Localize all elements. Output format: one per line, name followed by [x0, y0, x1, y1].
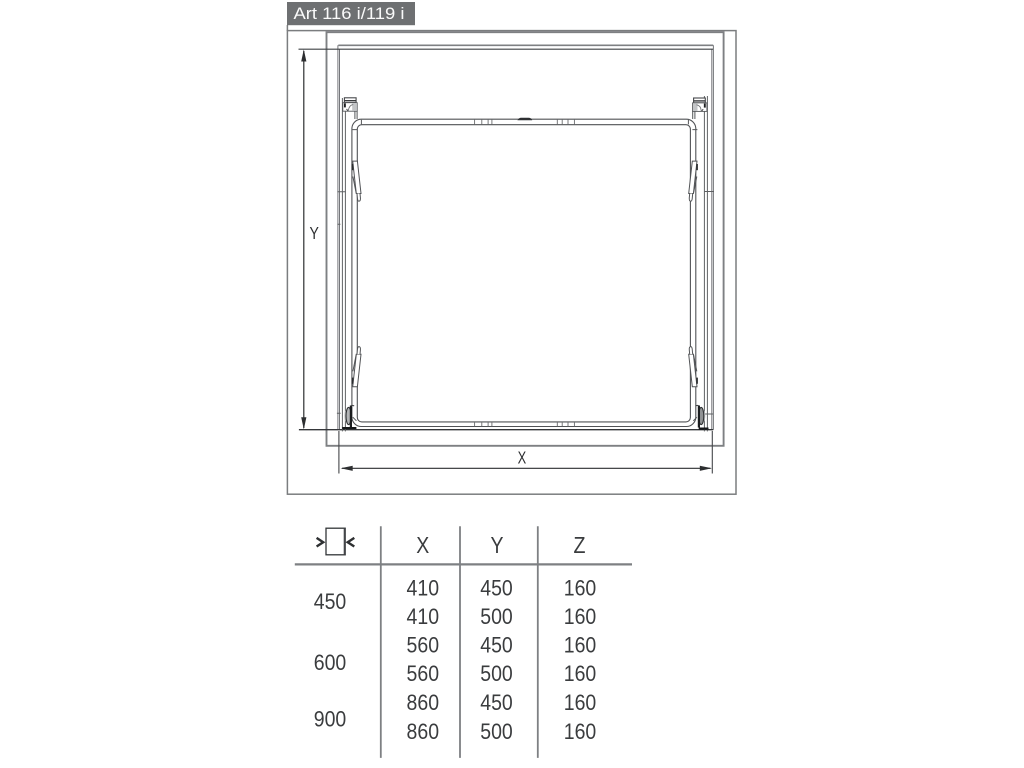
- svg-text:X: X: [416, 532, 429, 558]
- svg-text:500: 500: [480, 719, 513, 744]
- svg-text:500: 500: [480, 661, 513, 686]
- svg-text:X: X: [518, 448, 527, 468]
- svg-text:860: 860: [407, 690, 440, 715]
- svg-text:450: 450: [480, 576, 513, 601]
- svg-text:Y: Y: [491, 532, 504, 558]
- svg-text:600: 600: [314, 650, 347, 675]
- svg-text:860: 860: [407, 719, 440, 744]
- svg-text:410: 410: [407, 604, 440, 629]
- svg-text:410: 410: [407, 576, 440, 601]
- svg-text:160: 160: [564, 604, 597, 629]
- svg-text:160: 160: [564, 719, 597, 744]
- svg-text:Z: Z: [574, 532, 586, 558]
- svg-text:560: 560: [407, 633, 440, 658]
- svg-text:500: 500: [480, 604, 513, 629]
- svg-text:160: 160: [564, 661, 597, 686]
- svg-text:160: 160: [564, 633, 597, 658]
- svg-text:160: 160: [564, 576, 597, 601]
- svg-text:Art 116 i/119 i: Art 116 i/119 i: [294, 5, 405, 23]
- svg-text:450: 450: [314, 589, 347, 614]
- svg-text:Y: Y: [310, 223, 320, 243]
- svg-text:560: 560: [407, 661, 440, 686]
- svg-text:900: 900: [314, 707, 347, 732]
- svg-text:450: 450: [480, 633, 513, 658]
- svg-text:160: 160: [564, 690, 597, 715]
- svg-text:450: 450: [480, 690, 513, 715]
